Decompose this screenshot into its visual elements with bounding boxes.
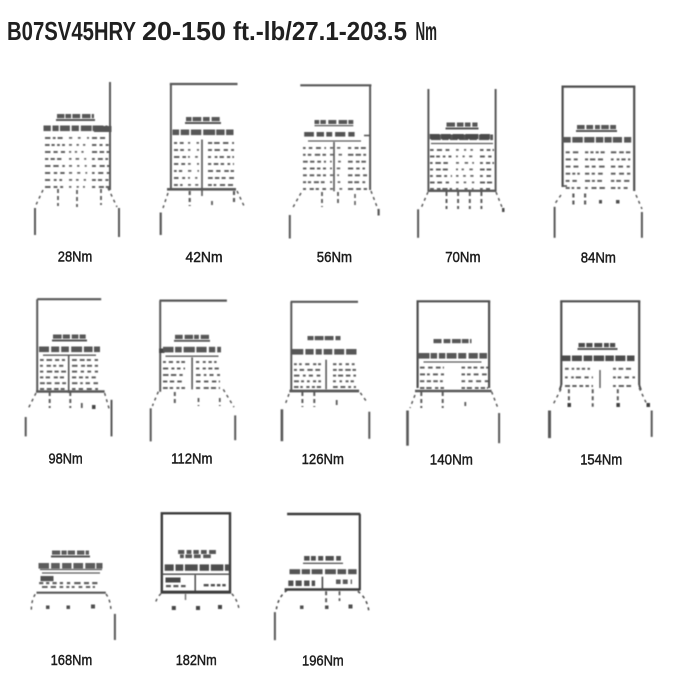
svg-text:98Nm: 98Nm	[49, 452, 83, 468]
svg-text:196Nm: 196Nm	[302, 654, 344, 670]
svg-text:42Nm: 42Nm	[186, 250, 223, 266]
svg-text:182Nm: 182Nm	[176, 653, 217, 669]
svg-text:140Nm: 140Nm	[430, 453, 473, 469]
svg-text:28Nm: 28Nm	[58, 250, 93, 266]
svg-text:154Nm: 154Nm	[580, 453, 622, 469]
svg-text:168Nm: 168Nm	[51, 653, 93, 669]
svg-text:112Nm: 112Nm	[171, 452, 212, 468]
svg-text:56Nm: 56Nm	[317, 250, 352, 266]
svg-text:B07SV45HRY20-150ft.-lb/27.1-20: B07SV45HRY20-150ft.-lb/27.1-203.5Nm	[7, 16, 437, 46]
svg-text:70Nm: 70Nm	[445, 250, 480, 266]
svg-text:126Nm: 126Nm	[302, 452, 344, 468]
svg-text:84Nm: 84Nm	[581, 251, 616, 267]
